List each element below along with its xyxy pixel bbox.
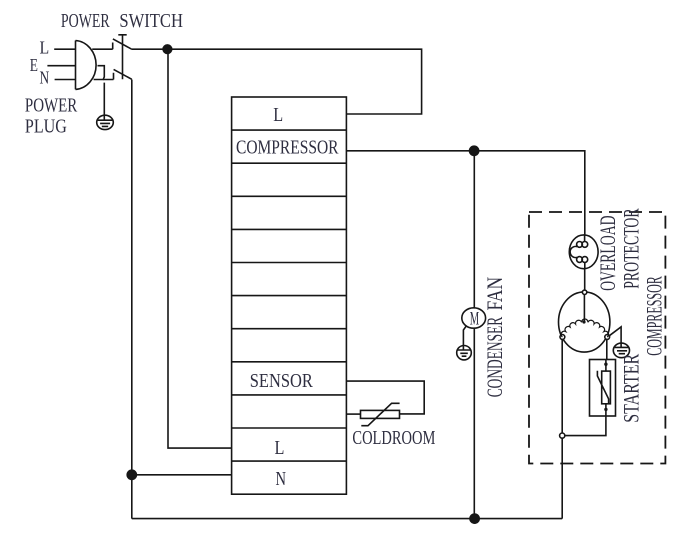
svg-text:M: M: [470, 309, 479, 330]
svg-text:SWITCH: SWITCH: [119, 10, 183, 32]
svg-text:COMPRESSOR: COMPRESSOR: [236, 136, 339, 158]
svg-text:N: N: [276, 468, 287, 490]
svg-text:PLUG: PLUG: [25, 117, 67, 138]
svg-text:L: L: [273, 104, 283, 126]
svg-text:PROTECTOR: PROTECTOR: [619, 208, 644, 289]
svg-text:L: L: [40, 38, 50, 58]
svg-text:CONDENSER: CONDENSER: [482, 317, 507, 398]
svg-text:COLDROOM: COLDROOM: [352, 428, 435, 449]
svg-text:POWER: POWER: [61, 10, 110, 32]
svg-text:L: L: [275, 437, 285, 459]
svg-text:N: N: [40, 67, 50, 87]
svg-text:COMPRESSOR: COMPRESSOR: [642, 276, 667, 356]
svg-text:SENSOR: SENSOR: [250, 370, 314, 392]
svg-text:E: E: [30, 55, 38, 75]
svg-text:STARTER: STARTER: [619, 354, 644, 423]
svg-text:POWER: POWER: [25, 96, 77, 117]
svg-text:FAN: FAN: [482, 277, 507, 311]
svg-text:OVERLOAD: OVERLOAD: [595, 216, 620, 291]
